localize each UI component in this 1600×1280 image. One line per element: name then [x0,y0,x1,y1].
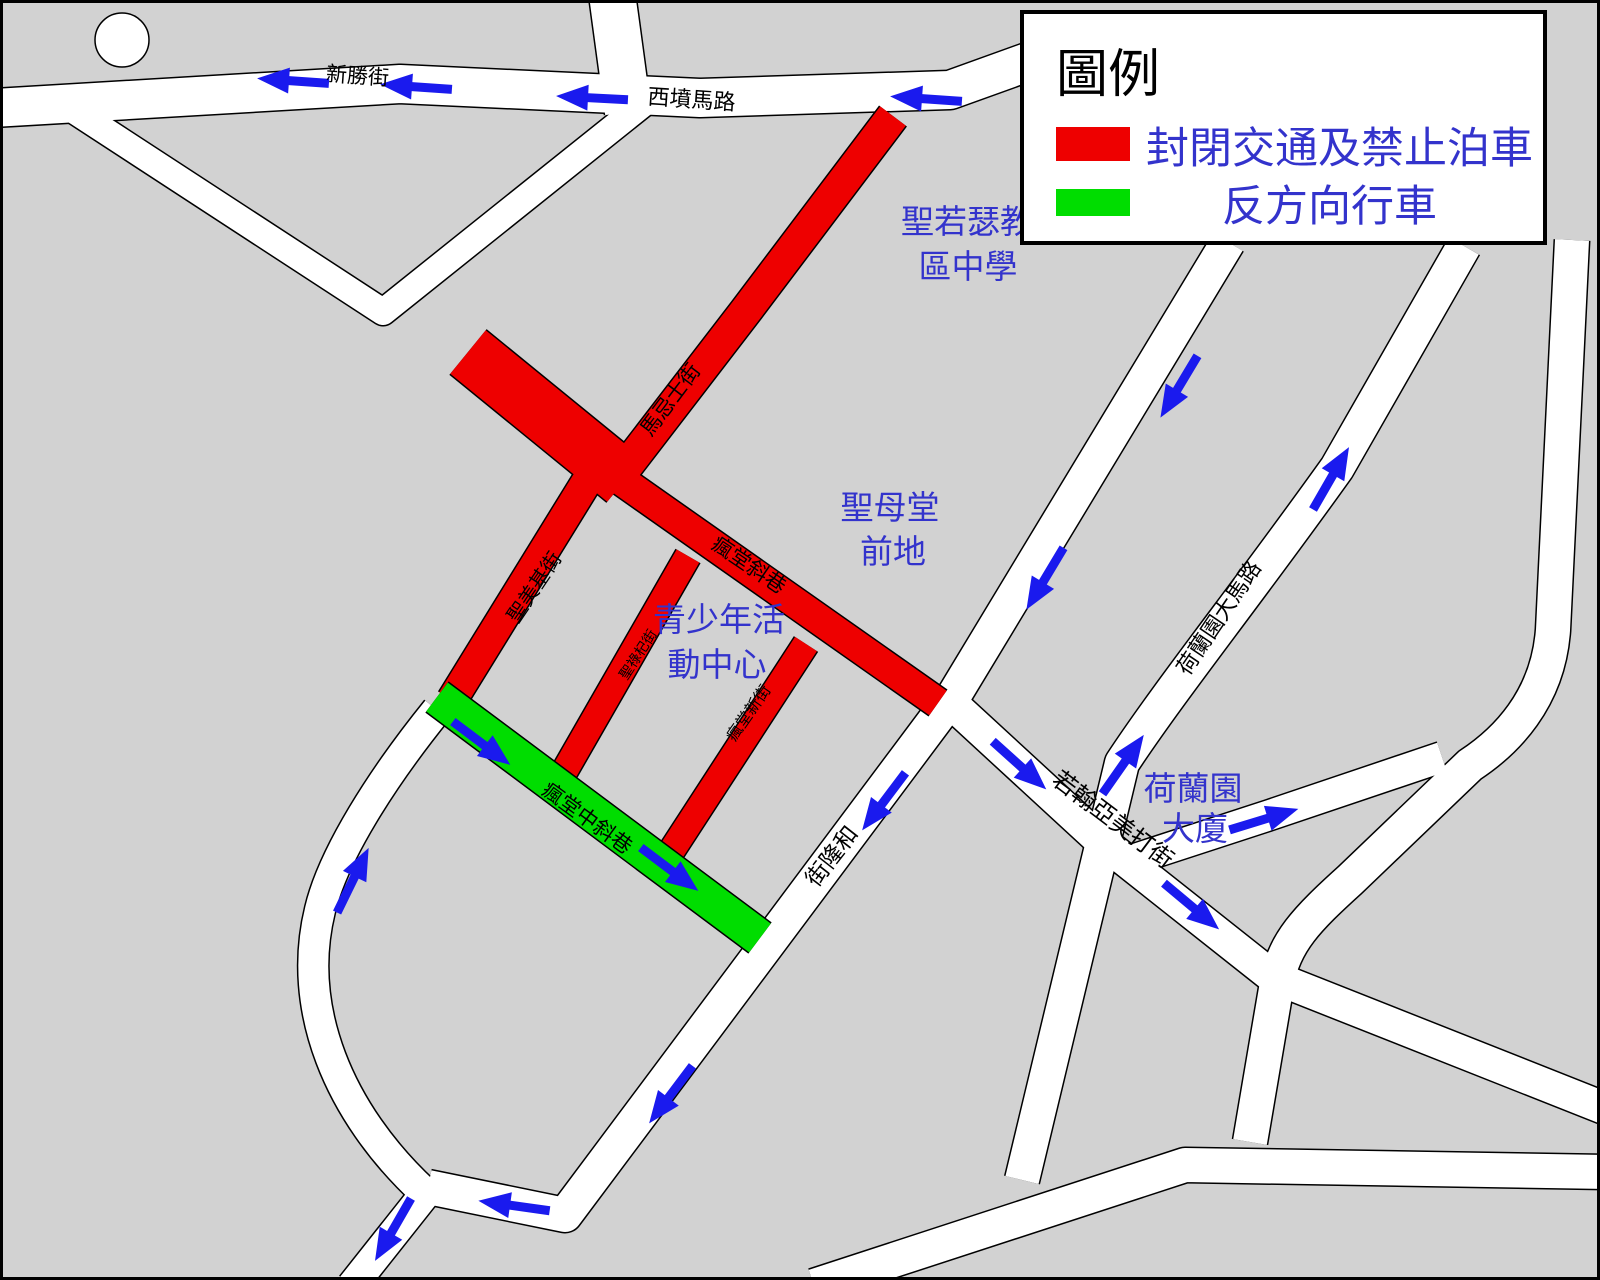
place-label-school-line2: 區中學 [919,249,1018,286]
map-canvas: 新勝街 西墳馬路 馬忌士街 聖美基街 瘋堂斜巷 聖祿杞街 瘋堂新街 瘋堂中斜巷 … [0,0,1600,1280]
place-label-youth-center-line1: 青少年活 [653,602,785,639]
street-label-san-seng-kai: 新勝街 [325,62,390,90]
legend-swatch-closed [1056,127,1130,161]
roundabout [95,13,149,67]
legend-label-reverse: 反方向行車 [1222,184,1437,231]
place-label-school-line1: 聖若瑟教 [901,204,1033,241]
legend-label-reverse-text: 反方向行車 [1222,184,1437,231]
legend-swatch-reverse [1056,189,1130,216]
place-label-church-square-line2: 前地 [860,534,926,571]
legend-label-closed: 封閉交通及禁止泊車 [1146,125,1533,173]
legend-title: 圖例 [1056,47,1160,104]
legend-label-closed-text: 封閉交通及禁止泊車 [1146,125,1533,173]
place-label-building-line2: 大廈 [1162,811,1228,848]
place-label-youth-center-line2: 動中心 [668,647,767,684]
place-label-building-line1: 荷蘭園 [1144,771,1243,808]
legend: 圖例 封閉交通及禁止泊車 反方向行車 [1022,12,1545,243]
traffic-map: 新勝街 西墳馬路 馬忌士街 聖美基街 瘋堂斜巷 聖祿杞街 瘋堂新街 瘋堂中斜巷 … [0,0,1600,1280]
place-label-church-square-line1: 聖母堂 [841,491,940,527]
